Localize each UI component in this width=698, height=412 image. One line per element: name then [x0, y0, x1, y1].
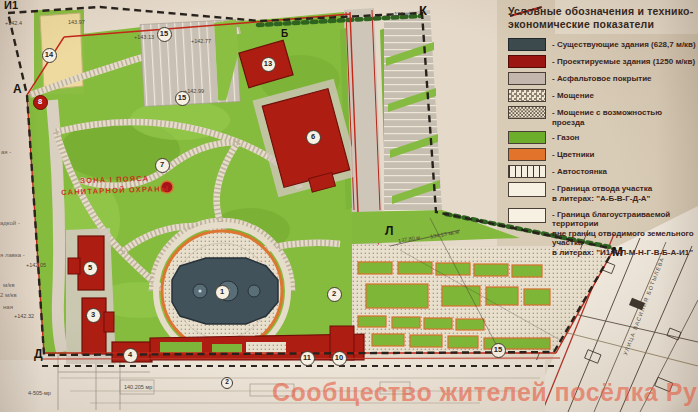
legend-label-line: в литерах: "И1-К-Л-М-Н-Г-В-Б-А-И1" — [552, 248, 696, 258]
plan-marker-3: 3 — [86, 308, 101, 323]
legend-swatch-improvement-boundary — [508, 208, 546, 223]
site-plan-photo: Условные обозначения и технико- экономич… — [0, 0, 698, 412]
legend-label: - Проектируемые здания (1250 м/кв) — [552, 55, 695, 67]
legend-swatch-existing-buildings — [508, 38, 546, 51]
boundary-letter-l: Л — [385, 225, 393, 237]
plan-marker-14: 14 — [42, 48, 57, 63]
legend-label-line: - Граница благоустраиваемой территории — [552, 210, 696, 229]
plan-marker-13: 13 — [261, 57, 276, 72]
margin-text-fragment: адкой - — [0, 220, 20, 226]
legend-swatch-lawn — [508, 131, 546, 144]
elevation-mark: +137 м — [391, 11, 409, 17]
survey-note: 140.205 мр — [124, 384, 152, 390]
legend-label: - Граница отвода участка в литерах: "А-Б… — [552, 182, 652, 203]
legend-label: - Автостоянка — [552, 165, 607, 177]
legend-label-line: - Граница отвода участка — [552, 184, 652, 194]
legend-item-asphalt: - Асфальтовое покрытие — [508, 72, 696, 85]
plan-marker-2: 2 — [327, 287, 342, 302]
survey-note: 4-505-мр — [28, 390, 51, 396]
legend-title-line2: экономические показатели — [508, 18, 696, 31]
legend-item-parking: - Автостоянка — [508, 165, 696, 178]
elevation-mark: +142.77 — [191, 38, 211, 44]
legend-swatch-asphalt — [508, 72, 546, 85]
legend-label-line: в литерах: "А-Б-В-Г-Д-А" — [552, 194, 652, 204]
plan-marker-4: 4 — [123, 348, 138, 363]
plan-marker-6: 6 — [306, 130, 321, 145]
legend-label: - Существующие здания (628,7 м/кв) — [552, 38, 696, 50]
legend-label: - Мощение с возможностью проезда — [552, 106, 696, 127]
legend-label: - Асфальтовое покрытие — [552, 72, 652, 84]
elevation-mark: +142.4 — [5, 20, 22, 26]
boundary-letter-a: А — [13, 83, 22, 95]
margin-text-fragment: 2 м/кв — [0, 292, 17, 298]
margin-text-fragment: ная — [3, 304, 13, 310]
plan-marker-15a: 15 — [157, 27, 172, 42]
elevation-mark: +143.13 — [134, 34, 154, 40]
legend-panel: Условные обозначения и технико- экономич… — [508, 5, 696, 262]
legend-swatch-proposed-buildings — [508, 55, 546, 68]
legend-swatch-site-boundary — [508, 182, 546, 197]
margin-text-fragment: я лавка - — [0, 252, 25, 258]
legend-label-line: вне границ отводимого земельного участка — [552, 229, 696, 248]
plan-marker-15c: 15 — [491, 343, 506, 358]
boundary-letter-b: Б — [281, 29, 288, 39]
legend-item-lawn: - Газон — [508, 131, 696, 144]
legend-item-existing-buildings: - Существующие здания (628,7 м/кв) — [508, 38, 696, 51]
elevation-mark: +142.05 — [26, 262, 46, 268]
plan-marker-5: 5 — [83, 261, 98, 276]
legend-item-site-boundary: - Граница отвода участка в литерах: "А-Б… — [508, 182, 696, 203]
plan-marker-2b: 2 — [221, 377, 233, 389]
plan-marker-1: 1 — [215, 285, 230, 300]
watermark-text: Сообщество жителей посёлка Рублёво — [272, 378, 698, 407]
legend-swatch-paving — [508, 89, 546, 102]
legend-swatch-parking — [508, 165, 546, 178]
elevation-mark: +142.32 — [14, 313, 34, 319]
legend-item-proposed-buildings: - Проектируемые здания (1250 м/кв) — [508, 55, 696, 68]
boundary-letter-d: Д — [34, 348, 43, 360]
margin-text-fragment: ая - — [1, 149, 11, 155]
legend-swatch-flowers — [508, 148, 546, 161]
legend-item-improvement-boundary: - Граница благоустраиваемой территории в… — [508, 208, 696, 258]
plan-marker-7: 7 — [155, 158, 170, 173]
elevation-mark: 143.97 — [68, 19, 85, 25]
legend-item-paving-driveable: - Мощение с возможностью проезда — [508, 106, 696, 127]
legend-item-flowers: - Цветники — [508, 148, 696, 161]
boundary-letter-i1: И1 — [4, 0, 18, 11]
plan-marker-15b: 15 — [175, 91, 190, 106]
boundary-letter-k: К — [419, 4, 427, 17]
sanitary-zone-label: ЗОНА I ПОЯСА САНИТАРНОЙ ОХРАНЫ — [50, 172, 181, 199]
plan-marker-11: 11 — [300, 351, 315, 366]
plan-marker-8: 8 — [33, 95, 48, 110]
margin-text-fragment: м/кв — [3, 282, 15, 288]
legend-label: - Мощение — [552, 89, 594, 101]
legend-label: - Граница благоустраиваемой территории в… — [552, 208, 696, 258]
legend-label: - Газон — [552, 131, 579, 143]
legend-swatch-paving-driveable — [508, 106, 546, 119]
legend-item-paving: - Мощение — [508, 89, 696, 102]
plan-marker-10: 10 — [332, 351, 347, 366]
legend-label: - Цветники — [552, 148, 594, 160]
